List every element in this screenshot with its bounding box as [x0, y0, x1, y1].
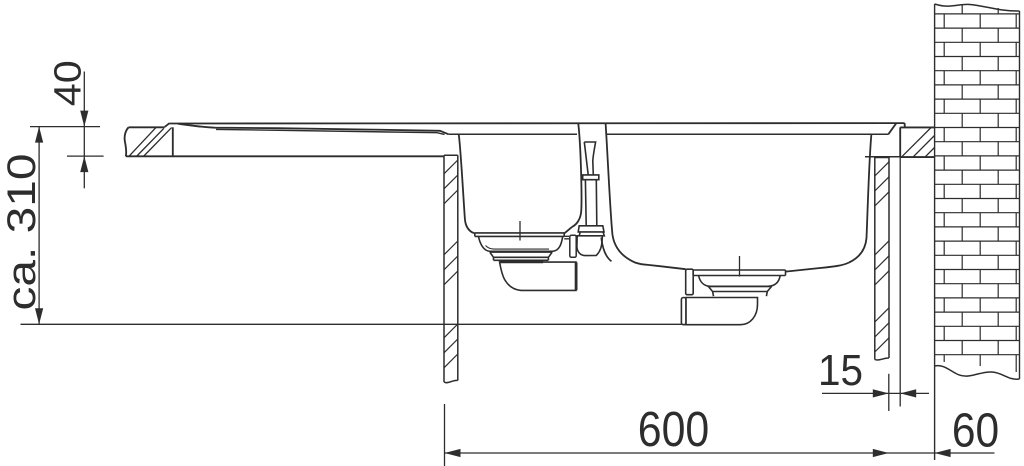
svg-text:600: 600	[638, 403, 710, 457]
svg-text:40: 40	[48, 60, 90, 106]
svg-text:60: 60	[952, 405, 999, 458]
svg-text:ca. 310: ca. 310	[0, 154, 44, 311]
svg-text:15: 15	[818, 346, 863, 395]
